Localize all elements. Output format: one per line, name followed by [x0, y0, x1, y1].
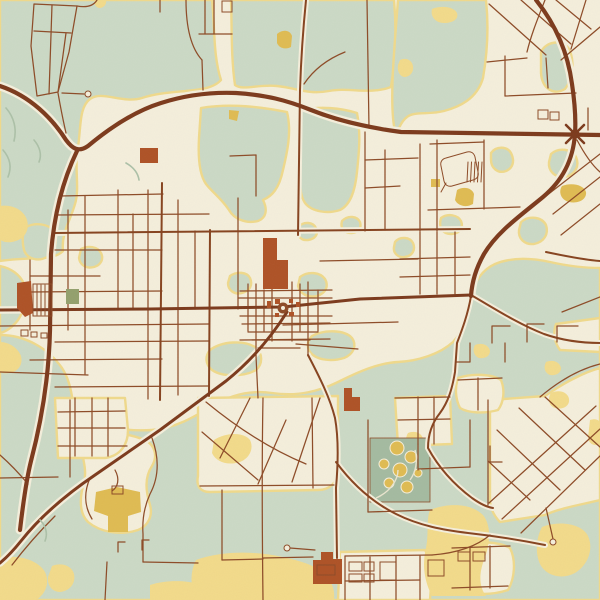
- paper-grain-overlay: [0, 0, 600, 600]
- map-viewport: [0, 0, 600, 600]
- map-canvas: [0, 0, 600, 600]
